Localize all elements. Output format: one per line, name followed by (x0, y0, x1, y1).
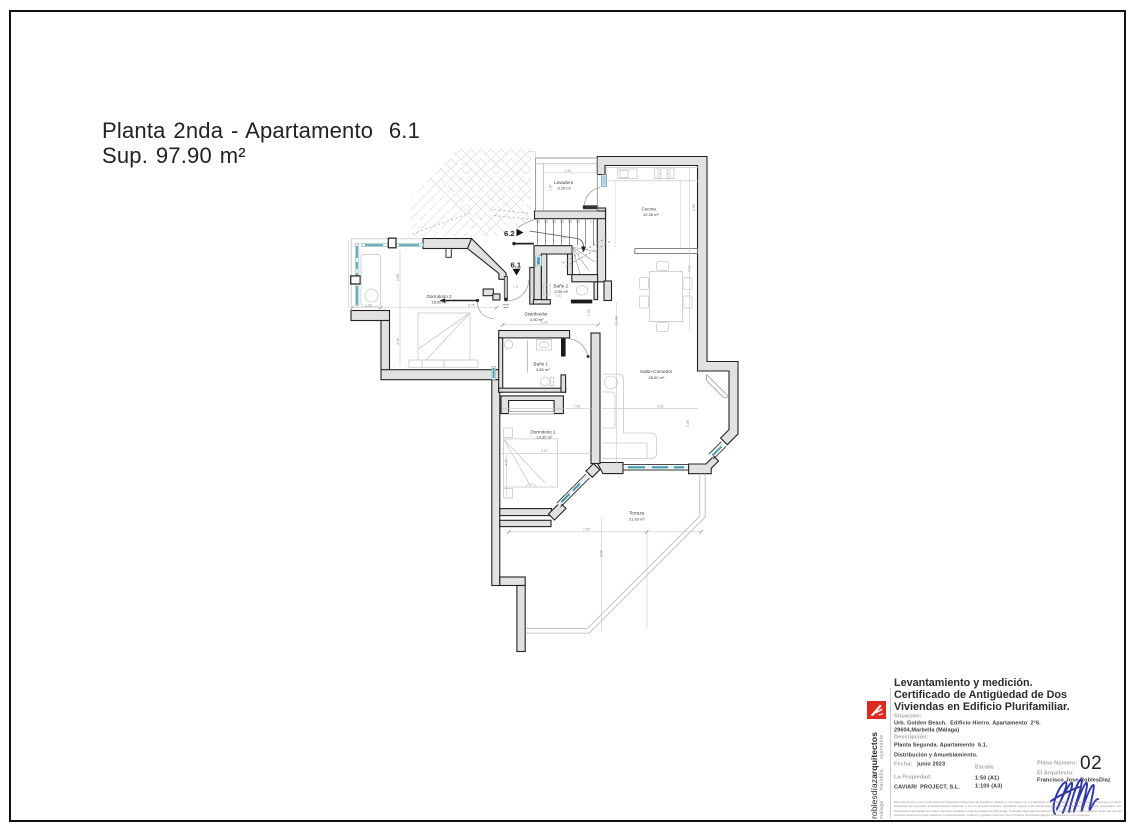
svg-text:1.67: 1.67 (549, 184, 553, 191)
svg-text:250: 250 (560, 220, 565, 223)
svg-text:6.2: 6.2 (504, 229, 515, 238)
svg-text:Distribuidor: Distribuidor (525, 312, 549, 317)
svg-text:1.91: 1.91 (565, 169, 572, 173)
svg-text:1.62: 1.62 (556, 294, 562, 298)
svg-text:4.50 m²: 4.50 m² (530, 317, 544, 322)
svg-text:Baño 1: Baño 1 (534, 362, 549, 367)
svg-text:18,50 m²: 18,50 m² (432, 300, 448, 305)
svg-text:Salón-Comedor: Salón-Comedor (640, 369, 673, 374)
svg-text:3.36: 3.36 (686, 420, 690, 427)
svg-text:12.35 m²: 12.35 m² (643, 212, 659, 217)
svg-text:1.65: 1.65 (533, 262, 537, 268)
svg-text:14,30 m²: 14,30 m² (537, 435, 553, 440)
svg-text:Terraza: Terraza (629, 511, 645, 516)
svg-text:7.20: 7.20 (688, 265, 692, 272)
svg-text:4.06: 4.06 (396, 338, 400, 345)
svg-text:3.47: 3.47 (541, 449, 548, 453)
svg-text:7.03: 7.03 (574, 405, 581, 409)
svg-text:21.83 m²: 21.83 m² (629, 517, 645, 522)
svg-text:Lavadero: Lavadero (554, 180, 574, 185)
svg-text:1.11: 1.11 (513, 285, 519, 289)
svg-text:3.85 m²: 3.85 m² (536, 367, 550, 372)
svg-text:5.75: 5.75 (468, 303, 475, 307)
svg-text:7.99: 7.99 (583, 528, 590, 532)
svg-text:Cocina: Cocina (642, 207, 657, 212)
svg-text:2.00 m²: 2.00 m² (555, 289, 569, 294)
svg-text:5.95: 5.95 (600, 550, 604, 557)
svg-text:2.98: 2.98 (396, 274, 400, 281)
svg-text:255: 255 (552, 220, 557, 223)
svg-text:6.1: 6.1 (511, 261, 522, 270)
svg-text:10.48: 10.48 (615, 316, 619, 325)
svg-text:Baño 2: Baño 2 (554, 284, 569, 289)
svg-text:4.05: 4.05 (505, 459, 509, 466)
svg-text:1.02: 1.02 (587, 309, 591, 316)
svg-text:245: 245 (568, 220, 573, 223)
svg-text:4.62: 4.62 (657, 405, 664, 409)
svg-text:3.20 m²: 3.20 m² (558, 186, 572, 191)
svg-text:1.09: 1.09 (365, 303, 372, 307)
svg-text:240: 240 (576, 220, 581, 223)
svg-text:0.98: 0.98 (561, 236, 567, 240)
svg-text:265: 265 (536, 220, 541, 223)
svg-text:Dormitorio 2: Dormitorio 2 (427, 294, 452, 299)
svg-text:260: 260 (544, 220, 549, 223)
svg-text:2: 2 (590, 220, 592, 223)
svg-text:28.50 m²: 28.50 m² (649, 375, 665, 380)
svg-text:2.96: 2.96 (692, 204, 696, 211)
